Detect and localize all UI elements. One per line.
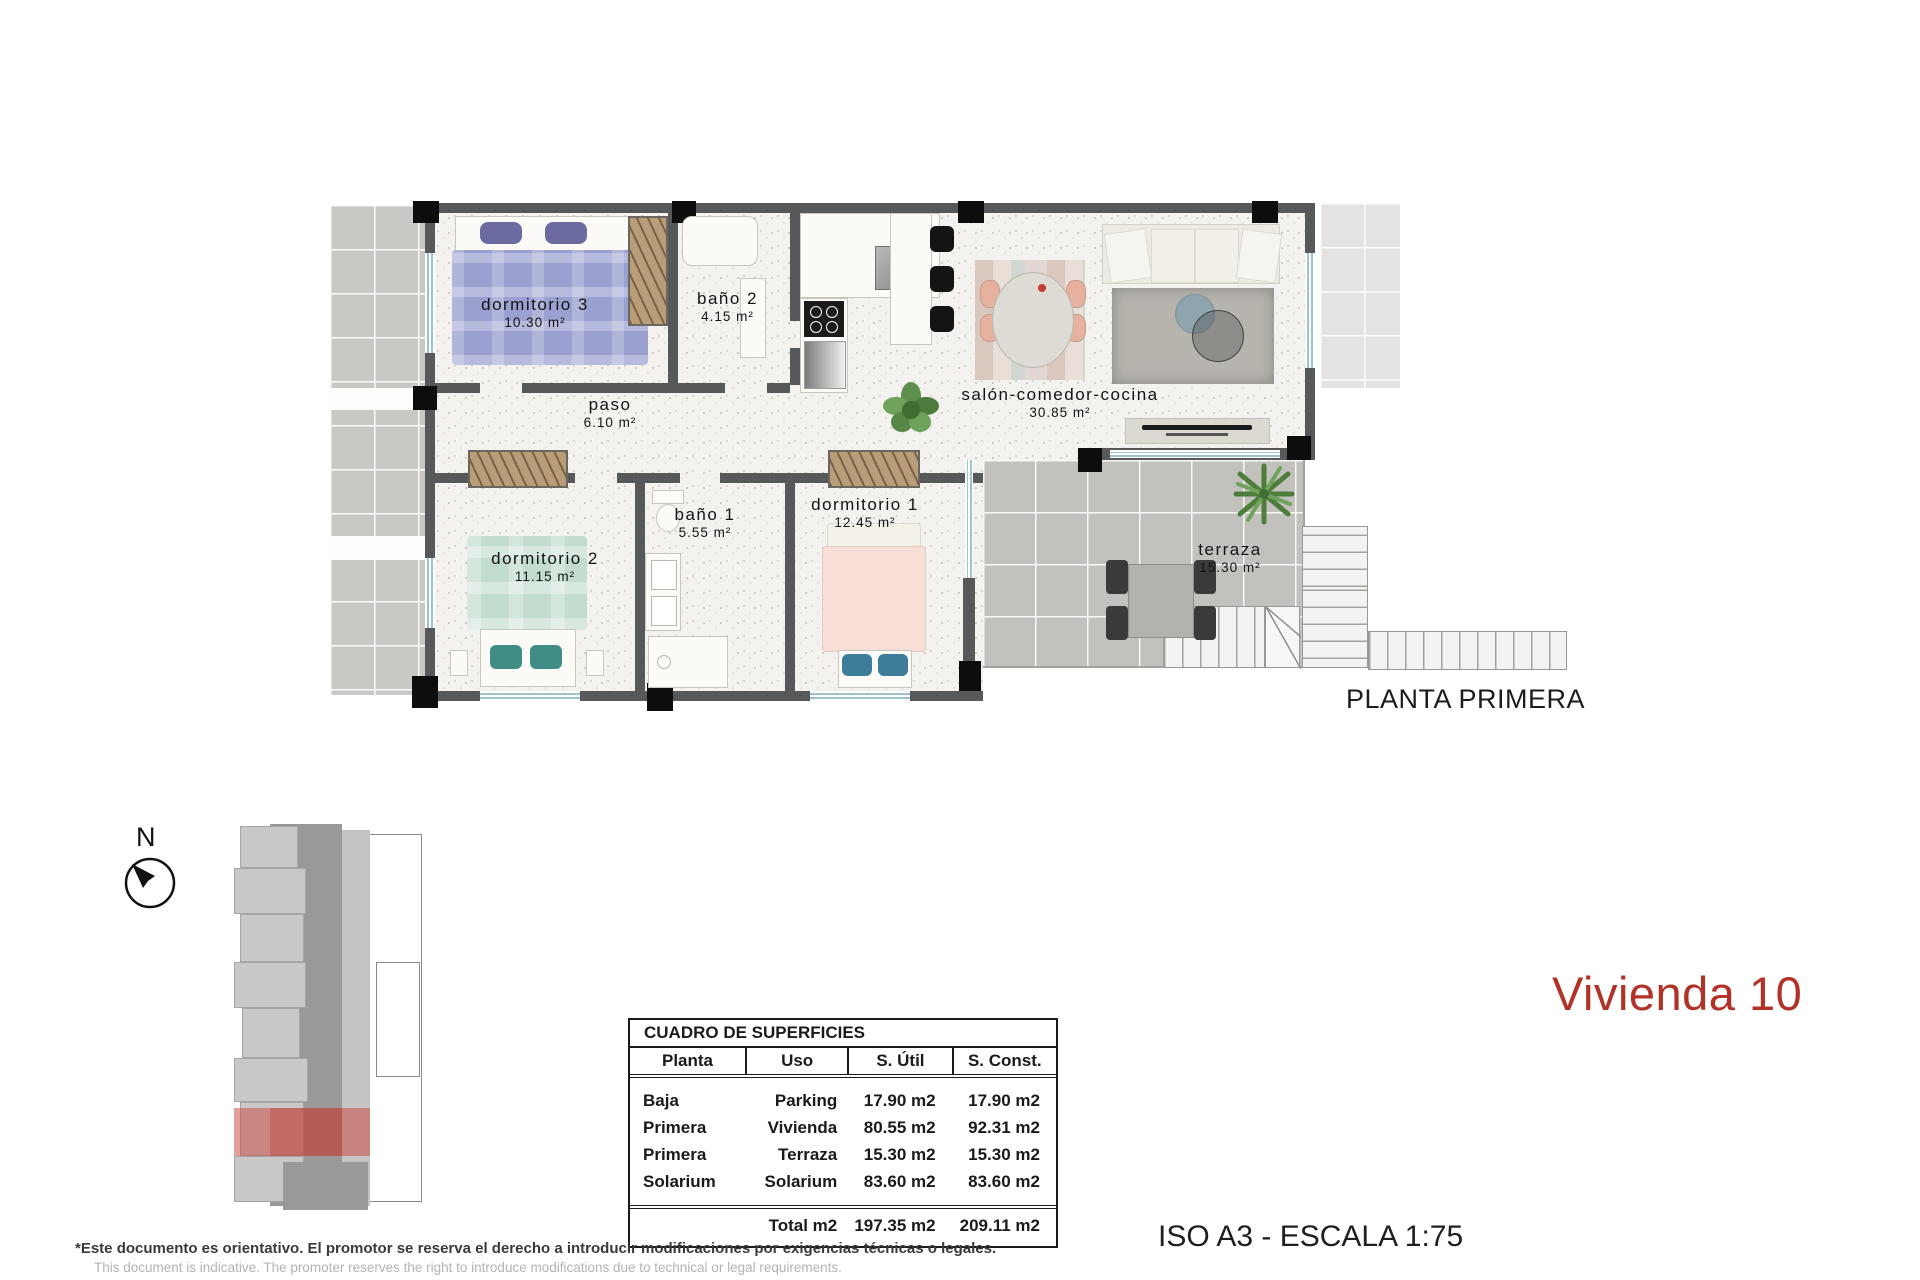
cell-util: 83.60 m2 [847,1168,951,1195]
wall-interior [790,213,800,321]
column-header-const: S. Const. [952,1048,1056,1074]
bar-stool [930,226,954,252]
window [810,691,910,701]
wall-interior [635,483,645,691]
wall-interior [767,383,790,393]
column-marker [412,676,438,708]
room-name: dormitorio 1 [780,494,950,515]
cell-const: 83.60 m2 [952,1168,1056,1195]
column-marker [413,201,439,223]
table-row: Solarium Solarium 83.60 m2 83.60 m2 [630,1168,1056,1195]
wall-interior [617,473,680,483]
pillow [530,645,562,669]
room-label-terraza: terraza 15.30 m² [1170,539,1290,577]
pillow [545,222,587,244]
unit-title: Vivienda 10 [1552,966,1802,1021]
room-name: paso [540,394,680,415]
pillow [842,654,872,676]
room-area: 15.30 m² [1170,560,1290,577]
siteplan-core-bottom [283,1162,368,1210]
room-label-salon: salón-comedor-cocina 30.85 m² [925,384,1195,422]
wall-interior [790,348,800,385]
column-marker [413,386,437,410]
bathtub [682,216,758,266]
column-marker [958,201,984,223]
siteplan-block [242,1008,300,1058]
room-area: 6.10 m² [540,415,680,432]
cell-planta: Primera [630,1141,745,1168]
cell-util: 80.55 m2 [847,1114,951,1141]
pillow [480,222,522,244]
shower-tray [648,636,728,688]
sofa [1102,224,1280,284]
wall-interior [435,383,480,393]
bathroom-vanity [645,553,681,631]
disclaimer-spanish: *Este documento es orientativo. El promo… [75,1240,996,1257]
siteplan-block [234,868,306,914]
cell-total-label: Total m2 [745,1214,847,1238]
cell-uso: Parking [745,1087,847,1114]
cell-planta: Solarium [630,1168,745,1195]
room-label-dormitorio2: dormitorio 2 11.15 m² [465,548,625,586]
neighbor-walkway-tiles [1320,203,1400,388]
room-name: baño 1 [645,504,765,525]
siteplan-block [234,1058,308,1102]
surfaces-table-header: Planta Uso S. Útil S. Const. [630,1048,1056,1078]
bar-stool [930,266,954,292]
siteplan-block [240,826,298,868]
siteplan-block [234,962,306,1008]
siteplan-block [240,914,304,962]
room-area: 11.15 m² [465,569,625,586]
table-flower [1038,284,1046,292]
pillow [878,654,908,676]
window [480,691,580,701]
pillow [490,645,522,669]
cell-total-blank [630,1214,745,1238]
room-area: 4.15 m² [670,309,785,326]
room-name: salón-comedor-cocina [925,384,1195,405]
cell-const: 17.90 m2 [952,1087,1056,1114]
side-walkway-tiles [330,205,425,695]
siteplan-detail [376,962,420,1077]
cooktop [804,301,844,337]
nightstand [450,650,468,676]
terrace-chair [1106,606,1128,640]
cell-uso: Terraza [745,1141,847,1168]
room-name: terraza [1170,539,1290,560]
plan-sheet: { "document": { "plan_title": "PLANTA PR… [0,0,1920,1280]
stair-winder-lines [1266,607,1301,669]
column-header-util: S. Útil [847,1048,951,1074]
table-row: Primera Terraza 15.30 m2 15.30 m2 [630,1141,1056,1168]
surfaces-table: CUADRO DE SUPERFICIES Planta Uso S. Útil… [628,1018,1058,1248]
cell-util: 17.90 m2 [847,1087,951,1114]
palm-plant-icon [1230,460,1298,528]
room-name: baño 2 [670,288,785,309]
scale-note: ISO A3 - ESCALA 1:75 [1158,1220,1463,1254]
column-marker [1078,448,1102,472]
window [425,253,435,353]
room-label-bano2: baño 2 4.15 m² [670,288,785,326]
cell-util: 15.30 m2 [847,1141,951,1168]
room-label-bano1: baño 1 5.55 m² [645,504,765,542]
cell-total-const: 209.11 m2 [952,1214,1056,1238]
kitchen-island [890,213,932,345]
wardrobe [468,450,568,488]
siteplan-unit-highlight-core [270,1108,342,1156]
coffee-table-glass [1192,310,1244,362]
floor-plan: dormitorio 3 10.30 m² baño 2 4.15 m² pas… [330,198,1580,713]
room-name: dormitorio 2 [465,548,625,569]
window [425,558,435,628]
cell-const: 92.31 m2 [952,1114,1056,1141]
table-row: Primera Vivienda 80.55 m2 92.31 m2 [630,1114,1056,1141]
stair-winder [1265,606,1300,668]
table-row: Baja Parking 17.90 m2 17.90 m2 [630,1087,1056,1114]
disclaimer-english: This document is indicative. The promote… [94,1260,842,1275]
window [1305,253,1315,368]
room-label-dormitorio3: dormitorio 3 10.30 m² [455,294,615,332]
surfaces-table-title: CUADRO DE SUPERFICIES [630,1020,1056,1048]
dining-table [992,272,1074,368]
bed-double [822,546,926,652]
cell-uso: Solarium [745,1168,847,1195]
sliding-door-glass [1110,450,1280,458]
room-label-paso: paso 6.10 m² [540,394,680,432]
room-label-dormitorio1: dormitorio 1 12.45 m² [780,494,950,532]
terrace-chair [1194,606,1216,640]
column-marker [959,661,981,691]
room-area: 12.45 m² [780,515,950,532]
window [965,460,973,578]
cell-total-util: 197.35 m2 [847,1214,951,1238]
column-header-planta: Planta [630,1048,745,1074]
plan-title: PLANTA PRIMERA [1346,684,1585,715]
wall-interior [522,383,725,393]
walkway-opening [330,388,425,410]
room-area: 5.55 m² [645,525,765,542]
column-marker [1287,436,1311,460]
compass-north-label: N [136,822,156,853]
cell-planta: Primera [630,1114,745,1141]
room-area: 30.85 m² [925,405,1195,422]
toilet-tank [652,490,684,504]
dishwasher [804,341,846,389]
bar-stool [930,306,954,332]
cell-uso: Vivienda [745,1114,847,1141]
wardrobe [628,216,668,326]
wall-top [425,203,1315,213]
stair-landing [1302,526,1368,668]
surfaces-table-body: Baja Parking 17.90 m2 17.90 m2 Primera V… [630,1078,1056,1205]
wardrobe [828,450,920,488]
cell-planta: Baja [630,1087,745,1114]
nightstand [586,650,604,676]
room-area: 10.30 m² [455,315,615,332]
room-name: dormitorio 3 [455,294,615,315]
stair-run-long [1368,631,1567,670]
compass-icon [122,855,178,911]
site-plan-diagram [228,812,428,1222]
column-marker [1252,201,1278,223]
column-header-uso: Uso [745,1048,847,1074]
walkway-opening [330,536,425,560]
terrace-chair [1106,560,1128,594]
cell-const: 15.30 m2 [952,1141,1056,1168]
